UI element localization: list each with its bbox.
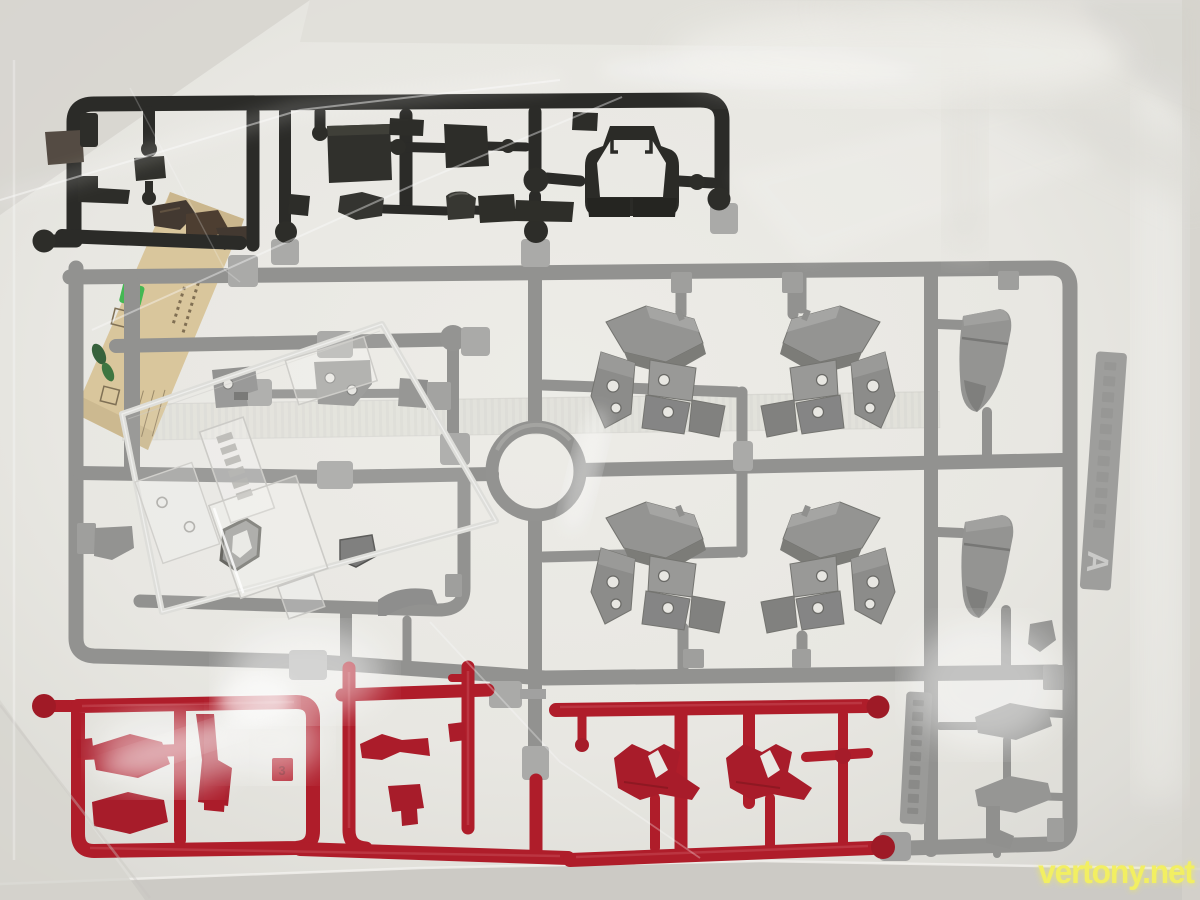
svg-text:vertony.net: vertony.net <box>1038 853 1195 890</box>
